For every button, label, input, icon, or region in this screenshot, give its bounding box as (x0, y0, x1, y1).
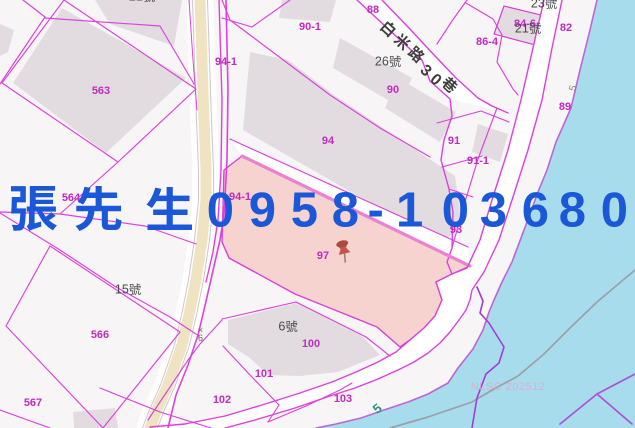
svg-text:21: 21 (515, 22, 529, 36)
svg-text:NLSC 202512: NLSC 202512 (471, 381, 546, 393)
svg-text:88: 88 (367, 4, 379, 16)
svg-text:100: 100 (302, 338, 320, 350)
svg-text:89: 89 (559, 101, 571, 113)
svg-text:23: 23 (531, 0, 545, 11)
svg-text:6: 6 (198, 333, 203, 343)
svg-text:26: 26 (375, 55, 389, 69)
svg-text:0958-103680: 0958-103680 (207, 184, 628, 238)
svg-text:94: 94 (322, 135, 335, 147)
svg-text:563: 563 (92, 85, 110, 97)
svg-text:103: 103 (334, 393, 352, 405)
svg-text:102: 102 (213, 394, 231, 406)
svg-text:91: 91 (448, 135, 460, 147)
svg-text:21: 21 (129, 0, 143, 4)
svg-text:86-4: 86-4 (476, 36, 499, 48)
svg-text:94-1: 94-1 (215, 56, 237, 68)
svg-text:90: 90 (387, 84, 399, 96)
svg-text:567: 567 (24, 397, 42, 409)
svg-text:564: 564 (62, 192, 81, 204)
svg-text:101: 101 (255, 368, 273, 380)
svg-text:97: 97 (317, 250, 329, 262)
svg-text:15: 15 (115, 283, 129, 297)
svg-text:91-1: 91-1 (467, 155, 489, 167)
svg-text:82: 82 (560, 22, 572, 34)
svg-text:566: 566 (91, 329, 109, 341)
svg-text:90-1: 90-1 (299, 21, 321, 33)
svg-text:6: 6 (278, 320, 285, 334)
